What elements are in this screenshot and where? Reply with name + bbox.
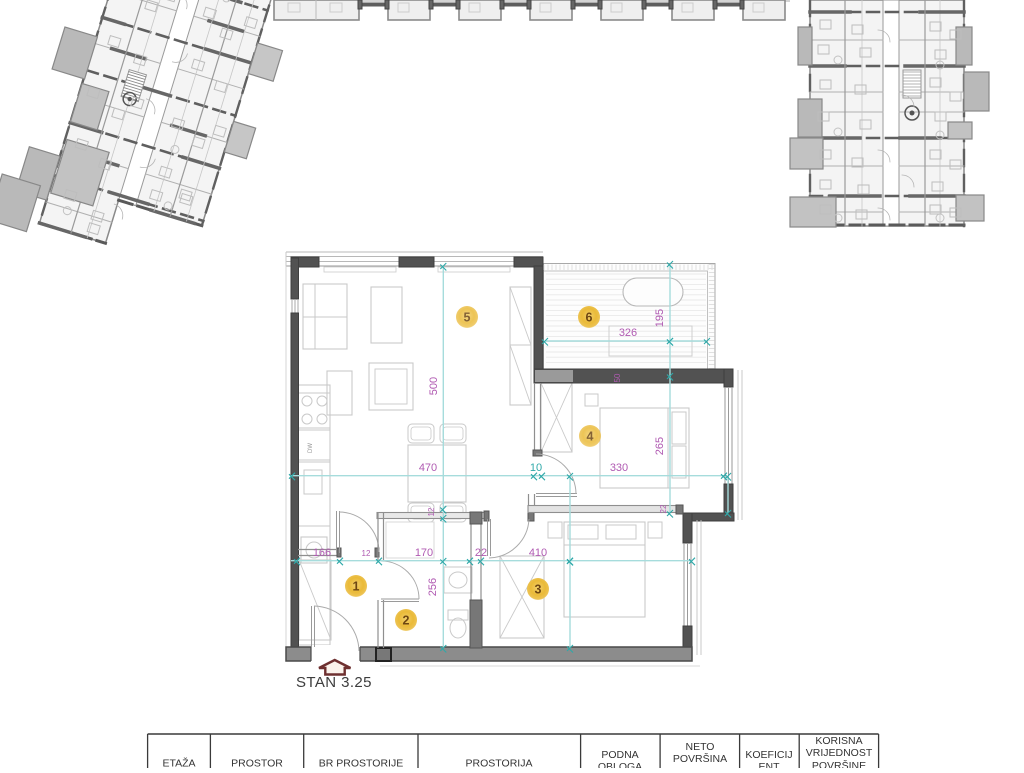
svg-text:326: 326: [619, 327, 637, 339]
svg-text:KOEFICIJ: KOEFICIJ: [745, 749, 792, 761]
svg-text:6: 6: [586, 311, 593, 325]
svg-text:POVRŠINE: POVRŠINE: [812, 759, 866, 768]
svg-text:KORISNA: KORISNA: [815, 735, 862, 747]
svg-text:410: 410: [529, 547, 547, 559]
svg-text:POVRŠINA: POVRŠINA: [673, 752, 727, 765]
svg-text:PROSTORIJA: PROSTORIJA: [466, 758, 533, 769]
svg-text:265: 265: [654, 437, 666, 455]
svg-text:22: 22: [659, 504, 668, 513]
svg-text:195: 195: [654, 309, 666, 327]
svg-text:3: 3: [535, 583, 542, 597]
svg-text:256: 256: [427, 578, 439, 596]
svg-text:166: 166: [313, 547, 331, 559]
svg-text:22: 22: [475, 547, 487, 559]
svg-text:VRIJEDNOST: VRIJEDNOST: [806, 747, 873, 759]
svg-text:10: 10: [530, 462, 542, 474]
svg-text:BR PROSTORIJE: BR PROSTORIJE: [319, 758, 403, 769]
svg-text:PODNA: PODNA: [601, 749, 638, 761]
svg-text:330: 330: [610, 462, 628, 474]
svg-text:4: 4: [587, 430, 594, 444]
svg-text:2: 2: [403, 614, 410, 628]
svg-text:1: 1: [353, 580, 360, 594]
svg-text:PROSTOR: PROSTOR: [231, 758, 283, 769]
svg-text:5: 5: [464, 311, 471, 325]
svg-text:12: 12: [427, 507, 436, 516]
svg-text:STAN 3.25: STAN 3.25: [296, 674, 372, 691]
svg-text:500: 500: [428, 377, 440, 395]
svg-text:12: 12: [362, 549, 371, 558]
svg-text:NETO: NETO: [686, 741, 715, 753]
svg-text:DW: DW: [308, 443, 314, 453]
svg-text:OBLOGA: OBLOGA: [598, 761, 642, 768]
svg-text:50: 50: [613, 373, 622, 382]
svg-text:ENT: ENT: [759, 761, 781, 768]
svg-text:ETAŽA: ETAŽA: [162, 757, 195, 769]
svg-text:470: 470: [419, 462, 437, 474]
svg-text:170: 170: [415, 547, 433, 559]
